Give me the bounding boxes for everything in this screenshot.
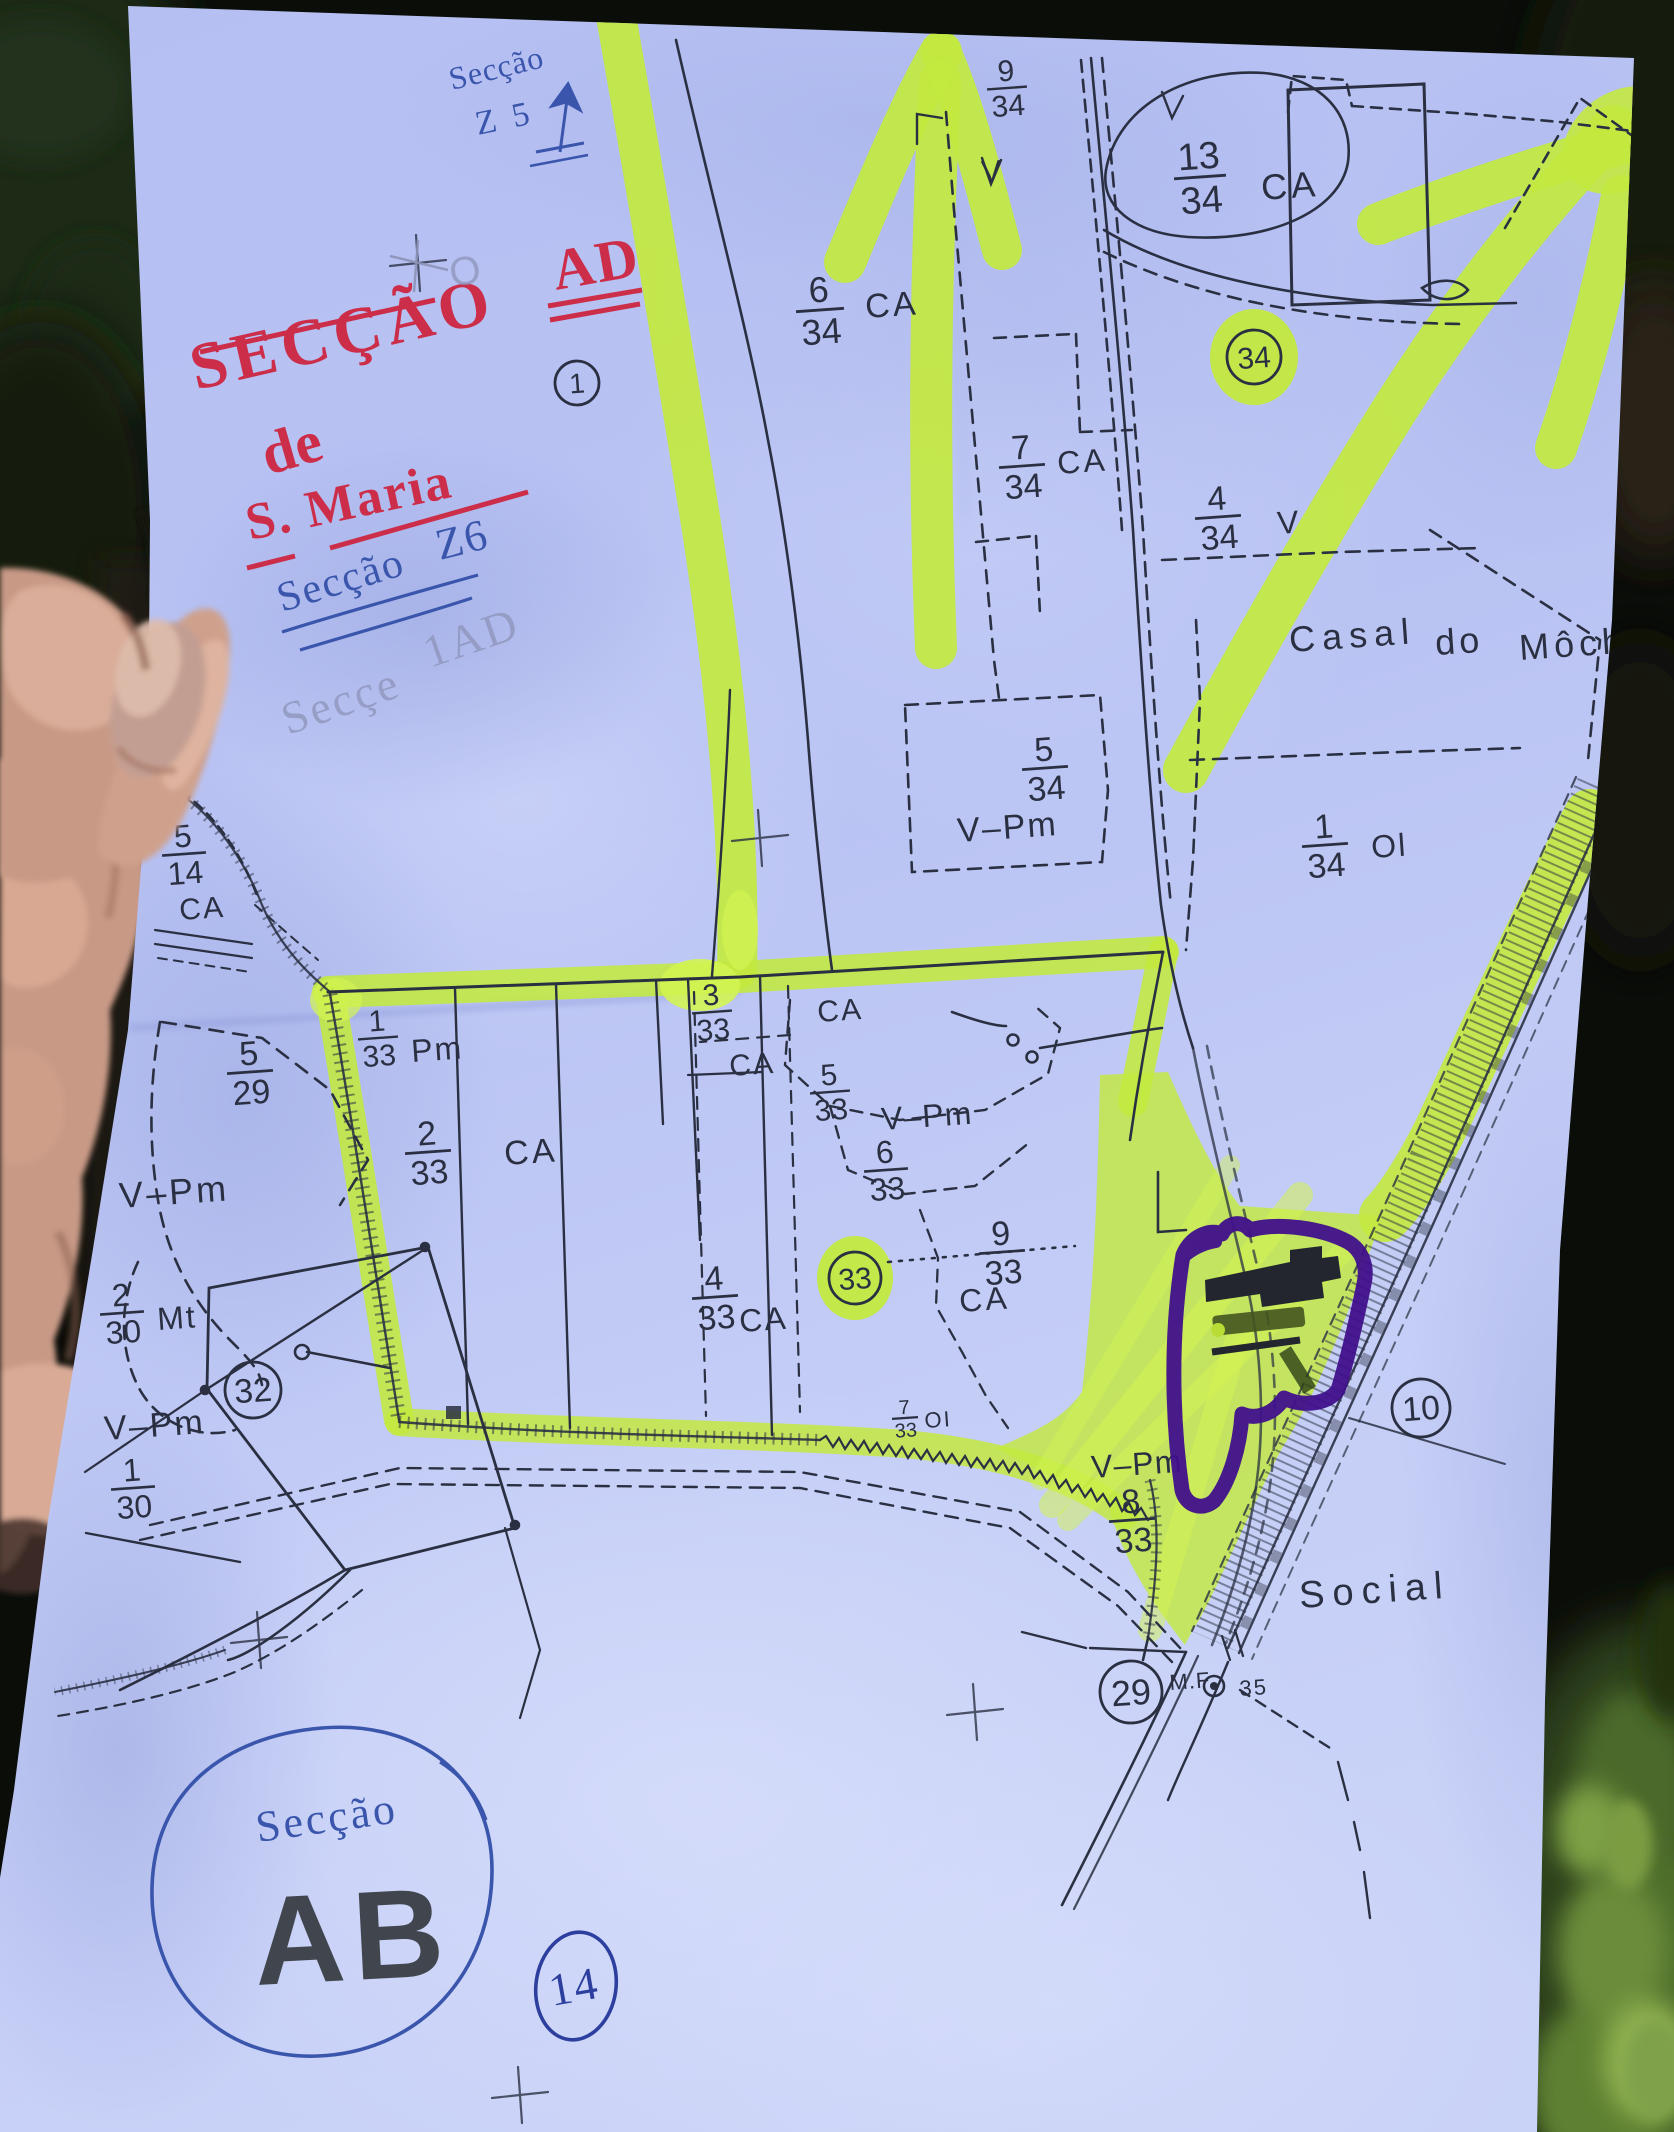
svg-text:2: 2 xyxy=(111,1276,131,1313)
svg-text:CA: CA xyxy=(178,891,226,927)
svg-text:33: 33 xyxy=(696,1298,736,1339)
svg-text:34: 34 xyxy=(1026,769,1066,810)
svg-text:V–Pm: V–Pm xyxy=(880,1095,973,1137)
svg-text:9: 9 xyxy=(996,54,1015,88)
svg-text:1: 1 xyxy=(1313,807,1335,846)
svg-text:6: 6 xyxy=(875,1133,895,1170)
svg-text:CA: CA xyxy=(1056,442,1109,481)
svg-text:CA: CA xyxy=(816,993,864,1029)
svg-text:1: 1 xyxy=(568,367,586,399)
svg-text:V–Pm: V–Pm xyxy=(118,1167,231,1216)
svg-text:1: 1 xyxy=(367,1004,386,1038)
svg-text:33: 33 xyxy=(894,1419,918,1442)
svg-text:Ol: Ol xyxy=(1370,827,1408,865)
svg-text:CA: CA xyxy=(958,1280,1011,1319)
svg-text:30: 30 xyxy=(115,1488,153,1526)
svg-text:1: 1 xyxy=(122,1451,142,1488)
svg-text:33: 33 xyxy=(813,1093,849,1128)
svg-text:29: 29 xyxy=(231,1073,271,1114)
svg-text:29: 29 xyxy=(1110,1671,1153,1715)
svg-text:34: 34 xyxy=(990,89,1026,124)
svg-text:4: 4 xyxy=(703,1259,725,1298)
svg-text:33: 33 xyxy=(1113,1521,1153,1562)
svg-text:34: 34 xyxy=(1306,846,1346,887)
svg-text:CA: CA xyxy=(738,1300,789,1339)
svg-text:3: 3 xyxy=(701,978,720,1012)
svg-text:34: 34 xyxy=(1199,518,1239,559)
svg-text:34: 34 xyxy=(800,310,843,354)
svg-text:9: 9 xyxy=(990,1214,1012,1253)
svg-text:5: 5 xyxy=(1033,730,1055,769)
svg-text:V: V xyxy=(980,155,1004,189)
svg-text:13: 13 xyxy=(1176,135,1221,180)
svg-text:5: 5 xyxy=(819,1058,838,1092)
svg-text:2: 2 xyxy=(416,1114,438,1153)
svg-text:V–Pm: V–Pm xyxy=(1090,1443,1183,1485)
svg-text:CA: CA xyxy=(864,284,920,326)
svg-text:14: 14 xyxy=(545,1957,603,2016)
svg-text:V–Pm: V–Pm xyxy=(103,1403,206,1448)
svg-text:34: 34 xyxy=(1236,341,1272,376)
svg-text:CA: CA xyxy=(503,1131,559,1173)
svg-text:do: do xyxy=(1434,619,1485,663)
svg-text:7: 7 xyxy=(898,1397,911,1420)
svg-text:34: 34 xyxy=(1179,179,1224,224)
svg-text:V–Pm: V–Pm xyxy=(956,805,1059,850)
svg-text:OI: OI xyxy=(924,1406,953,1433)
svg-text:35: 35 xyxy=(1239,1674,1269,1701)
svg-text:30: 30 xyxy=(104,1313,142,1351)
svg-text:33: 33 xyxy=(361,1039,397,1074)
svg-text:32: 32 xyxy=(233,1371,273,1412)
svg-text:AB: AB xyxy=(250,1861,455,2012)
svg-text:CA: CA xyxy=(1260,163,1321,208)
svg-text:33: 33 xyxy=(409,1153,449,1194)
svg-text:7: 7 xyxy=(1010,428,1032,467)
svg-text:V: V xyxy=(1276,503,1302,541)
svg-text:14: 14 xyxy=(166,854,204,892)
svg-text:Pm: Pm xyxy=(410,1029,464,1069)
svg-text:34: 34 xyxy=(1003,467,1043,508)
svg-text:33: 33 xyxy=(868,1170,906,1208)
svg-text:M.F.: M.F. xyxy=(1169,1667,1216,1695)
svg-text:33: 33 xyxy=(837,1262,873,1297)
svg-text:8: 8 xyxy=(1120,1482,1142,1521)
svg-text:33: 33 xyxy=(695,1013,731,1048)
svg-text:5: 5 xyxy=(238,1034,260,1073)
svg-text:10: 10 xyxy=(1401,1389,1441,1430)
svg-text:Mt: Mt xyxy=(156,1298,198,1337)
svg-text:6: 6 xyxy=(807,268,830,310)
svg-text:4: 4 xyxy=(1206,479,1228,518)
svg-text:CA: CA xyxy=(728,1047,776,1083)
